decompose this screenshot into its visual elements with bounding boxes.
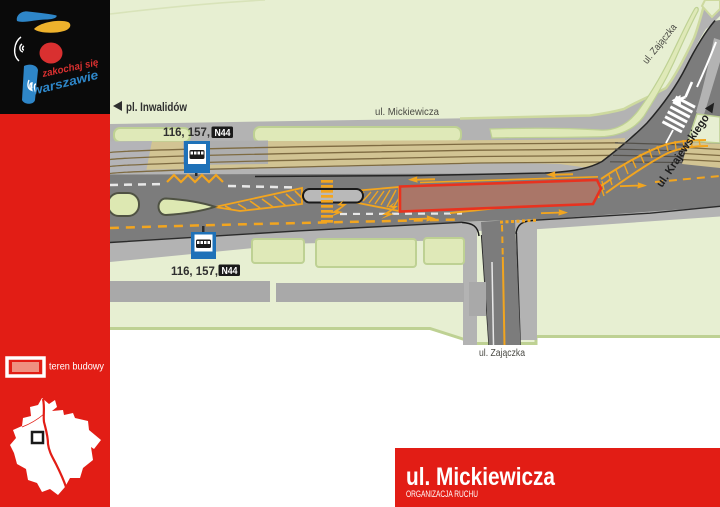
svg-text:ul. Mickiewicza: ul. Mickiewicza xyxy=(375,107,439,118)
svg-text:116, 157,: 116, 157, xyxy=(171,264,218,278)
svg-text:teren budowy: teren budowy xyxy=(49,362,104,373)
svg-text:ul. Zajączka: ul. Zajączka xyxy=(479,348,525,359)
svg-text:N44: N44 xyxy=(222,266,238,277)
svg-text:pl. Inwalidów: pl. Inwalidów xyxy=(126,100,188,114)
svg-text:N44: N44 xyxy=(215,128,231,139)
svg-text:116, 157,: 116, 157, xyxy=(163,125,210,139)
svg-text:ORGANIZACJA RUCHU: ORGANIZACJA RUCHU xyxy=(406,489,478,499)
svg-text:ul. Mickiewicza: ul. Mickiewicza xyxy=(406,463,556,491)
